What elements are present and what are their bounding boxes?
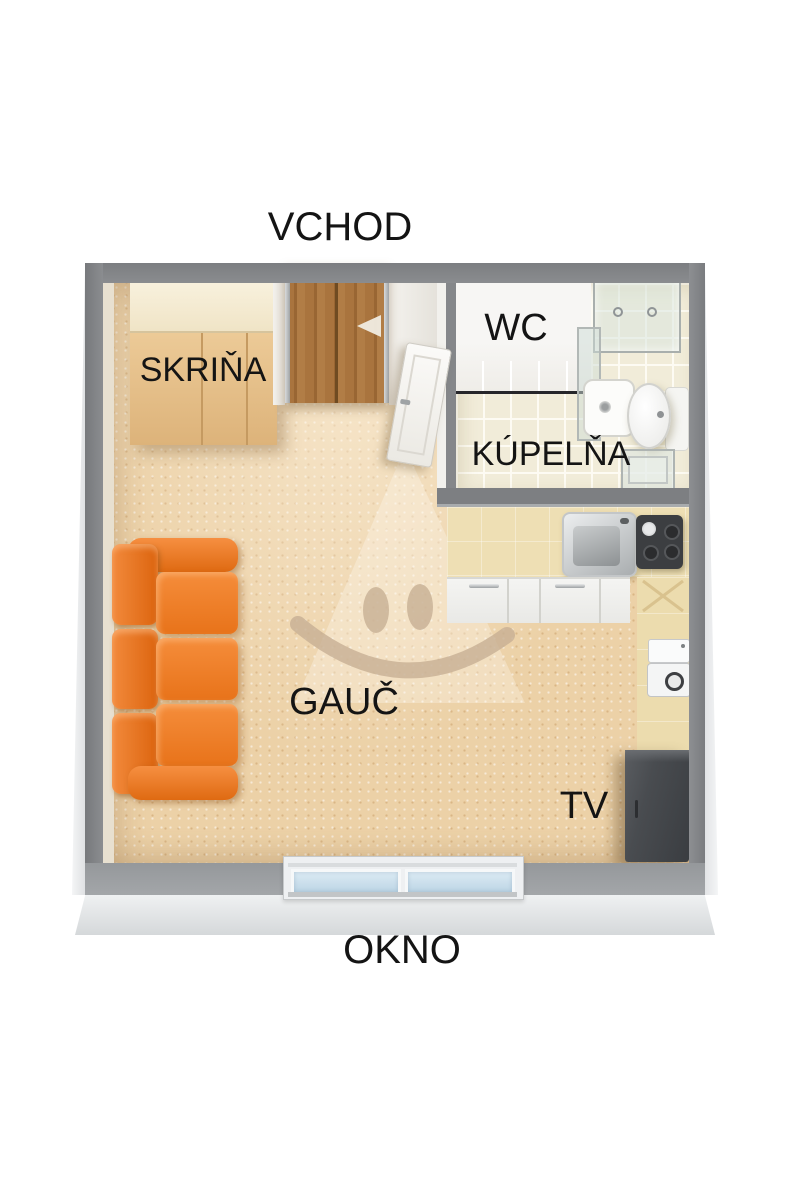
couch-armrest (128, 766, 238, 800)
bathroom-sink (627, 383, 671, 449)
entrance-door (285, 263, 389, 403)
entrance-door-handle-shelf (357, 315, 381, 337)
bathroom-bottom-wall (437, 488, 689, 507)
wall-top (85, 263, 705, 283)
floor-plan: SKRIŇA WC KÚPELŇA GAUČ TV (85, 263, 705, 895)
entrance-door-frame-rail (384, 263, 389, 403)
bathroom-label: KÚPELŇA (472, 435, 631, 474)
couch-label: GAUČ (289, 681, 399, 724)
cabinet-handle (469, 584, 499, 588)
wardrobe-top-face (130, 283, 277, 333)
wall-left (85, 263, 103, 895)
appliance-panel (648, 639, 690, 663)
kitchen-faucet (620, 518, 629, 524)
bathroom-partition-wall-top (446, 283, 456, 503)
floorplan-canvas: VCHOD (0, 0, 800, 1200)
cabinet-seam (507, 579, 509, 623)
entrance-label: VCHOD (268, 205, 412, 250)
entrance-door-seam (335, 263, 338, 403)
kitchen-cabinets (447, 577, 630, 623)
entrance-door-jamb-left (273, 283, 285, 405)
wall-front-face-left (72, 269, 85, 895)
wardrobe-label: SKRIŇA (140, 351, 267, 390)
entrance-door-frame-rail (285, 263, 290, 403)
burner-icon (643, 545, 659, 561)
kitchen-sink (562, 512, 637, 577)
couch (112, 538, 238, 800)
window-sill (288, 892, 517, 897)
kitchen-sink-basin (573, 526, 620, 566)
burner-icon (664, 524, 680, 540)
shower-hook-icon (613, 307, 623, 317)
cabinet-seam (539, 579, 541, 623)
burner-icon (642, 522, 656, 536)
window-label: OKNO (343, 928, 461, 973)
tv-label: TV (560, 785, 609, 828)
couch-backrest (112, 544, 158, 794)
wall-right (689, 263, 705, 895)
counter-tile-pattern (641, 579, 685, 613)
cabinet-handle (555, 584, 585, 588)
couch-seat-cushions (156, 572, 238, 766)
cooktop (636, 515, 683, 569)
shower-cabin (593, 279, 681, 353)
tv-cabinet (625, 750, 689, 862)
window (283, 856, 524, 900)
burner-icon (664, 544, 680, 560)
wall-front-face-right (705, 269, 718, 895)
window-rail (288, 863, 517, 867)
washing-machine (647, 663, 691, 697)
shower-hook-icon (647, 307, 657, 317)
cabinet-seam (599, 579, 601, 623)
wc-label: WC (484, 307, 547, 350)
